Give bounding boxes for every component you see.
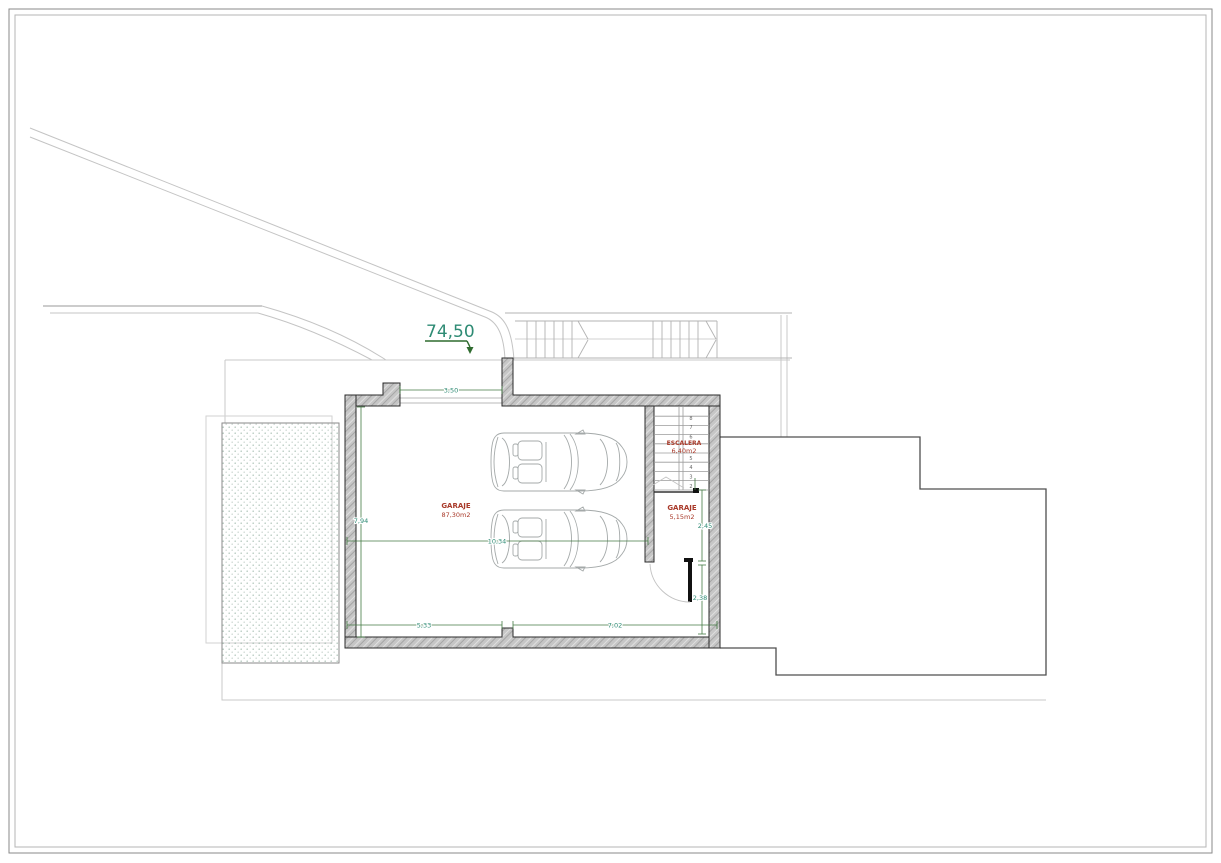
step-number: 2 (689, 484, 692, 490)
dim-bottom-right-span: 7,02 (608, 622, 622, 630)
room-area-garage-main: 87,30m2 (441, 511, 470, 519)
dim-bottom-left-span: 5,33 (417, 622, 431, 630)
garage-walls (345, 358, 720, 648)
room-area-garage-small: 5,15m2 (670, 513, 695, 521)
garage-door-lines (400, 398, 513, 403)
car-top-view-1 (491, 430, 627, 494)
floor-plan-canvas: 3,50 7,94 10,34 5,33 7,02 2,45 2,38 74,5… (0, 0, 1221, 863)
step-number: 8 (689, 416, 692, 422)
step-number: 5 (689, 456, 692, 462)
dim-garage-door-width: 3,50 (444, 387, 458, 395)
exterior-stairs (505, 313, 792, 358)
floor-plan-drawing: 3,50 7,94 10,34 5,33 7,02 2,45 2,38 74,5… (0, 0, 1221, 863)
dimension-lines (347, 386, 717, 637)
level-marker: 74,50 (425, 322, 475, 354)
dim-door-bay-height: 2,38 (693, 594, 707, 602)
step-number: 3 (689, 475, 692, 481)
sheet-border (9, 9, 1212, 853)
dim-garage-width: 10,34 (488, 538, 507, 546)
room-label-staircase: ESCALERA (667, 440, 702, 447)
room-area-staircase: 6,40m2 (672, 447, 697, 455)
dim-garage-depth: 7,94 (354, 517, 368, 525)
step-number: 6 (689, 435, 692, 441)
step-number: 4 (689, 465, 692, 471)
step-number: 7 (689, 425, 692, 431)
dim-small-garage-height: 2,45 (698, 522, 712, 530)
room-label-garage-main: GARAJE (441, 502, 471, 510)
level-marker-value: 74,50 (426, 322, 475, 342)
car-top-view-2 (491, 507, 627, 571)
terrace-outline (720, 437, 1046, 675)
room-label-garage-small: GARAJE (667, 504, 697, 512)
textured-terrace (206, 416, 339, 663)
